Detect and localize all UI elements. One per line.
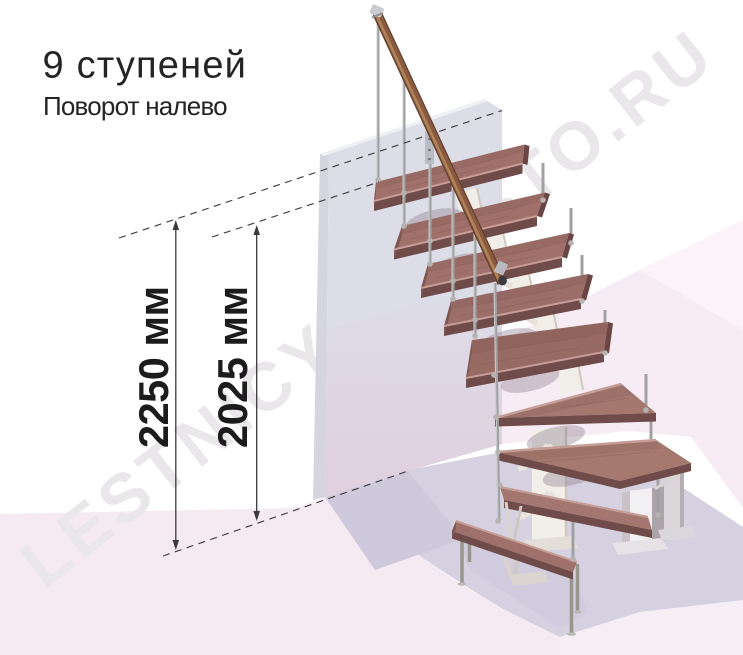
svg-text:2250 мм: 2250 мм [130, 286, 177, 448]
svg-text:9 ступеней: 9 ступеней [43, 45, 248, 87]
svg-text:2025 мм: 2025 мм [209, 286, 256, 448]
svg-text:Поворот налево: Поворот налево [43, 91, 227, 121]
